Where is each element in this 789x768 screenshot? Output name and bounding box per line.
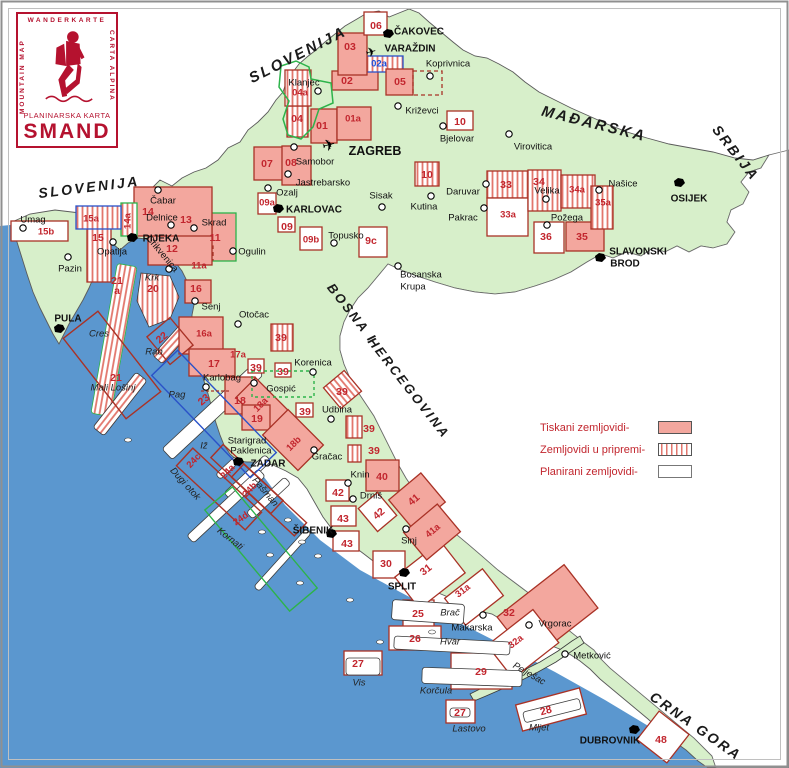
sheet-39f[interactable] — [346, 416, 362, 438]
sheet-label-39d: 39 — [299, 406, 311, 418]
sheet-label-27: 27 — [352, 658, 364, 670]
city-label-VARAŽDIN: VARAŽDIN — [385, 42, 436, 55]
city-label-ČAKOVEC: ČAKOVEC — [394, 25, 444, 38]
country-label-SLOVENIJA: SLOVENIJA — [37, 173, 140, 201]
city-marker-Čabar — [155, 187, 161, 193]
city-marker-Vrgorac — [526, 622, 532, 628]
sheet-label-18: 18 — [234, 395, 246, 407]
city-label-DUBROVNIK: DUBROVNIK — [580, 736, 641, 747]
smand-logo: WANDERKARTE MOUNTAIN MAP CARTA ALPINA PL… — [16, 12, 118, 148]
sheet-label-19: 19 — [251, 413, 263, 425]
city-marker-Našice — [596, 187, 602, 193]
island-label-Mljet: Mljet — [529, 723, 549, 734]
city-label-Velika: Velika — [534, 186, 560, 197]
city-marker-Daruvar — [483, 181, 489, 187]
sheet-label-34a: 34a — [569, 185, 586, 196]
city-marker-Opatija — [110, 239, 116, 245]
islet — [429, 630, 436, 634]
city-label-Pakrac: Pakrac — [448, 213, 478, 224]
city-label-Vrgorac: Vrgorac — [539, 619, 572, 630]
city-label-Krupa: Krupa — [400, 282, 426, 293]
sheet-label-01a: 01a — [345, 114, 362, 125]
city-marker-Korenica — [310, 369, 316, 375]
city-label-Gospić: Gospić — [266, 384, 296, 395]
sheet-label-30: 30 — [380, 558, 392, 570]
sheet-label-03: 03 — [344, 41, 356, 53]
sheet-label-26: 26 — [409, 633, 421, 645]
sheet-label-01: 01 — [316, 120, 328, 132]
city-label-SPLIT: SPLIT — [388, 582, 416, 593]
city-label-Koprivnica: Koprivnica — [426, 59, 471, 70]
city-label-Paklenica: Paklenica — [230, 446, 272, 457]
city-label-Pazin: Pazin — [58, 264, 82, 275]
sheet-label-39g: 39 — [368, 445, 380, 457]
sheet-label-39c: 39 — [277, 366, 289, 378]
city-marker-Umag — [20, 225, 26, 231]
sheet-label-33: 33 — [500, 179, 512, 191]
islet — [377, 640, 384, 644]
city-label-Križevci: Križevci — [405, 106, 438, 117]
city-label-Otočac: Otočac — [239, 310, 269, 321]
sheet-label-10b: 10 — [421, 169, 433, 181]
city-marker-Drniš — [350, 496, 356, 502]
city-label-Bjelovar: Bjelovar — [440, 134, 474, 145]
city-label-SLAVONSKI: SLAVONSKI — [609, 247, 667, 258]
sheet-label-04a: 04a — [292, 88, 309, 99]
map-legend: Tiskani zemljovidi- Zemljovidi u priprem… — [540, 421, 692, 487]
islet — [347, 598, 354, 602]
city-marker-Pakrac — [481, 205, 487, 211]
city-marker-Otočac — [235, 321, 241, 327]
city-marker-Senj — [192, 298, 198, 304]
city-label-Bosanska: Bosanska — [400, 270, 442, 281]
logo-wanderkarte-label: WANDERKARTE — [18, 17, 116, 24]
legend-item-printed: Tiskani zemljovidi- — [540, 421, 692, 434]
sheet-label-27b: 27 — [454, 707, 466, 719]
islet — [125, 438, 132, 442]
city-marker-Bjelovar — [440, 123, 446, 129]
city-marker-Velika — [543, 196, 549, 202]
sheet-label-16a: 16a — [196, 329, 213, 340]
sheet-label-39b: 39 — [250, 362, 262, 374]
city-label-BROD: BROD — [610, 259, 639, 270]
logo-carta-alpina-label: CARTA ALPINA — [108, 30, 115, 114]
city-marker-Metković — [562, 651, 568, 657]
city-label-Delnice: Delnice — [146, 213, 178, 224]
hiker-icon — [40, 28, 98, 106]
city-label-Virovitica: Virovitica — [514, 142, 553, 153]
city-label-Sinj: Sinj — [401, 536, 417, 547]
city-marker-Knin — [345, 480, 351, 486]
city-marker-Sisak — [379, 204, 385, 210]
croatia-smand-coverage-map: 0101a0202a030404a050607080909a09b9c10101… — [0, 0, 789, 768]
island-label-Iž: Iž — [200, 441, 208, 452]
island-label-Lastovo: Lastovo — [452, 724, 485, 735]
sheet-label-09a: 09a — [259, 198, 276, 209]
city-marker-Križevci — [395, 103, 401, 109]
sheet-label-09b: 09b — [303, 235, 320, 246]
sheet-label-15a: 15a — [83, 214, 100, 225]
city-label-Daruvar: Daruvar — [446, 187, 480, 198]
sheet-label-04: 04 — [291, 113, 303, 125]
islet — [315, 554, 322, 558]
sheet-label-43b: 43 — [341, 538, 353, 550]
city-label-Kutina: Kutina — [411, 202, 439, 213]
city-label-Našice: Našice — [608, 179, 637, 190]
city-label-Sisak: Sisak — [369, 191, 392, 202]
islet — [297, 581, 304, 585]
island-label-Brač: Brač — [440, 608, 460, 619]
sheet-label-17: 17 — [208, 358, 220, 370]
city-label-Drniš: Drniš — [360, 491, 382, 502]
legend-item-in-preparation: Zemljovidi u pripremi- — [540, 443, 692, 456]
city-label-Makarska: Makarska — [451, 623, 493, 634]
city-marker-Gospić — [251, 380, 257, 386]
sheet-label-02: 02 — [341, 75, 353, 87]
sheet-39g[interactable] — [348, 445, 361, 462]
city-label-ZADAR: ZADAR — [251, 459, 287, 470]
city-label-Korenica: Korenica — [294, 358, 332, 369]
island-label-Mali Lošinj: Mali Lošinj — [91, 383, 137, 394]
sheet-label-29: 29 — [475, 666, 487, 678]
sheet-label-15: 15 — [92, 232, 104, 244]
sheet-label-16: 16 — [190, 283, 202, 295]
legend-item-planned: Planirani zemljovidi- — [540, 465, 692, 478]
city-marker-Udbina — [328, 416, 334, 422]
island-label-Pag: Pag — [169, 390, 187, 401]
islet — [285, 518, 292, 522]
city-marker-Bosanska — [395, 263, 401, 269]
island-label-Vis: Vis — [352, 678, 365, 689]
sheet-label-07: 07 — [261, 158, 273, 170]
logo-mountain-map-label: MOUNTAIN MAP — [19, 30, 26, 114]
city-label-Knin: Knin — [350, 470, 369, 481]
sheet-label-10: 10 — [454, 116, 466, 128]
map-page: 0101a0202a030404a050607080909a09b9c10101… — [0, 0, 789, 768]
sheet-label-05: 05 — [394, 76, 406, 88]
island-label-Rab: Rab — [145, 347, 162, 358]
city-label-Gračac: Gračac — [312, 452, 343, 463]
city-label-OSIJEK: OSIJEK — [671, 194, 708, 205]
city-label-Samobor: Samobor — [296, 157, 335, 168]
city-marker-Sinj — [403, 526, 409, 532]
sheet-label-11a: 11a — [191, 261, 207, 272]
city-label-KARLOVAC: KARLOVAC — [286, 205, 342, 216]
city-marker-Ogulin — [230, 248, 236, 254]
city-label-Požega: Požega — [551, 213, 584, 224]
sheet-label-39e: 39 — [336, 386, 348, 398]
city-label-Karlobag: Karlobag — [203, 373, 241, 384]
planned-maps-swatch-icon — [658, 465, 692, 478]
legend-label-printed: Tiskani zemljovidi- — [540, 422, 658, 434]
sheet-label-21a2: a — [114, 285, 120, 297]
city-label-Opatija: Opatija — [97, 247, 128, 258]
city-marker-Karlobag — [203, 384, 209, 390]
city-marker-Samobor — [291, 144, 297, 150]
islet — [299, 540, 306, 544]
legend-label-in-preparation: Zemljovidi u pripremi- — [540, 444, 658, 456]
sheet-label-25: 25 — [412, 608, 424, 620]
city-label-Umag: Umag — [20, 215, 45, 226]
city-label-PULA: PULA — [54, 314, 81, 325]
sheet-label-02a: 02a — [371, 59, 388, 70]
maps-in-preparation-swatch-icon — [658, 443, 692, 456]
islet — [267, 553, 274, 557]
city-marker-Pazin — [65, 254, 71, 260]
city-marker-Klanjec — [315, 88, 321, 94]
island-label-Cres: Cres — [89, 329, 109, 340]
city-marker-Virovitica — [506, 131, 512, 137]
sheet-label-14a: 14a — [123, 212, 134, 229]
city-label-Klanjec: Klanjec — [288, 78, 319, 89]
sheet-label-06: 06 — [370, 20, 382, 32]
sheet-label-40: 40 — [376, 471, 388, 483]
sheet-label-42: 42 — [332, 487, 344, 499]
printed-maps-swatch-icon — [658, 421, 692, 434]
city-label-ZAGREB: ZAGREB — [349, 144, 402, 158]
city-label-Jastrebarsko: Jastrebarsko — [296, 178, 350, 189]
city-label-Topusko: Topusko — [328, 231, 363, 242]
logo-planinarska-karta-label: PLANINARSKA KARTA — [18, 111, 116, 120]
city-label-Udbina: Udbina — [322, 405, 353, 416]
sheet-label-17a: 17a — [230, 350, 247, 361]
city-label-Ogulin: Ogulin — [238, 247, 265, 258]
islet — [259, 530, 266, 534]
city-label-Metković: Metković — [573, 651, 611, 662]
city-label-Senj: Senj — [201, 302, 220, 313]
sheet-label-35a: 35a — [595, 198, 612, 209]
city-marker-Ozalj — [265, 185, 271, 191]
island-label-Krk: Krk — [145, 273, 161, 284]
sheet-label-11: 11 — [209, 232, 220, 244]
sheet-label-15b: 15b — [38, 227, 55, 238]
island-korcula — [422, 667, 522, 686]
sheet-label-09: 09 — [281, 221, 293, 233]
sheet-label-43: 43 — [337, 513, 349, 525]
sheet-label-36: 36 — [540, 231, 552, 243]
city-label-Čabar: Čabar — [150, 196, 176, 207]
island-label-Korčula: Korčula — [420, 686, 452, 697]
sheet-label-20: 20 — [147, 283, 159, 295]
sheet-label-39a: 39 — [275, 332, 287, 344]
city-marker-Jastrebarsko — [285, 171, 291, 177]
city-marker-Požega — [544, 222, 550, 228]
city-label-Ozalj: Ozalj — [276, 188, 298, 199]
legend-label-planned: Planirani zemljovidi- — [540, 466, 658, 478]
sheet-label-9c: 9c — [365, 235, 377, 247]
city-marker-Skrad — [191, 225, 197, 231]
city-label-Skrad: Skrad — [202, 218, 227, 229]
city-marker-Makarska — [480, 612, 486, 618]
sheet-label-32: 32 — [503, 607, 515, 619]
logo-brand-smand: SMAND — [18, 120, 116, 144]
sheet-label-39f: 39 — [363, 423, 375, 435]
sheet-label-35: 35 — [576, 231, 588, 243]
city-marker-Kutina — [428, 193, 434, 199]
island-label-Hvar: Hvar — [440, 637, 461, 648]
sheet-label-13: 13 — [180, 214, 192, 226]
city-label-ŠIBENIK: ŠIBENIK — [293, 524, 334, 537]
sheet-label-33a: 33a — [500, 210, 517, 221]
city-marker-Koprivnica — [427, 73, 433, 79]
sheet-label-48: 48 — [655, 734, 667, 746]
